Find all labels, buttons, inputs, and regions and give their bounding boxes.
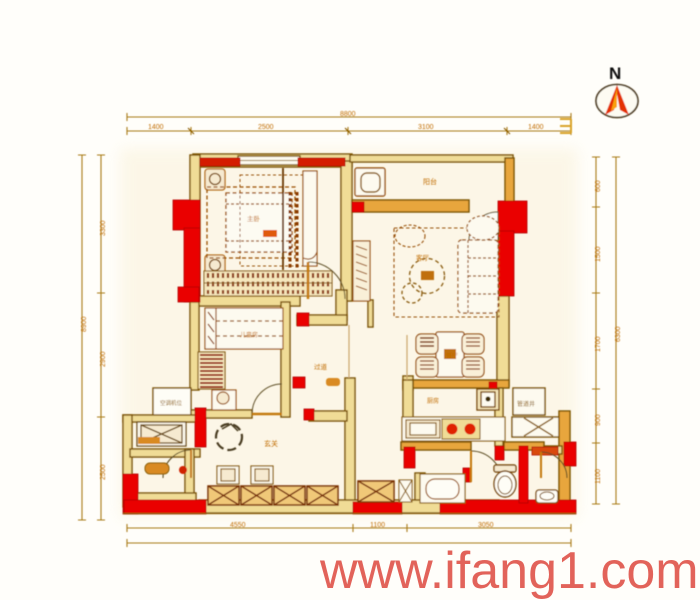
svg-text:2500: 2500 <box>100 464 107 480</box>
svg-text:1400: 1400 <box>148 124 164 131</box>
svg-text:3300: 3300 <box>100 220 107 236</box>
svg-text:8900: 8900 <box>81 316 88 332</box>
svg-text:1400: 1400 <box>528 124 544 131</box>
svg-text:8800: 8800 <box>340 111 356 118</box>
svg-text:www.ifang1.com: www.ifang1.com <box>319 542 699 600</box>
svg-text:厨房: 厨房 <box>427 397 439 405</box>
svg-text:2900: 2900 <box>100 351 107 367</box>
svg-text:4550: 4550 <box>230 522 246 529</box>
svg-text:N: N <box>609 64 621 83</box>
svg-text:1100: 1100 <box>370 522 385 529</box>
svg-text:阳台: 阳台 <box>423 177 437 186</box>
svg-text:主卧: 主卧 <box>247 214 261 223</box>
svg-text:过道: 过道 <box>314 362 328 371</box>
svg-text:1100: 1100 <box>595 469 602 484</box>
svg-text:3100: 3100 <box>418 124 434 131</box>
svg-text:1700: 1700 <box>595 336 602 352</box>
svg-text:管道井: 管道井 <box>517 400 535 408</box>
svg-text:1500: 1500 <box>595 246 602 262</box>
svg-text:3050: 3050 <box>478 522 494 529</box>
svg-text:6300: 6300 <box>615 326 622 342</box>
svg-text:空调机位: 空调机位 <box>160 399 183 407</box>
svg-text:餐厅: 餐厅 <box>446 352 458 360</box>
svg-text:客厅: 客厅 <box>416 253 430 262</box>
svg-text:600: 600 <box>595 180 602 192</box>
svg-text:玄关: 玄关 <box>264 439 278 448</box>
svg-text:2500: 2500 <box>258 124 274 131</box>
svg-text:900: 900 <box>595 414 602 426</box>
svg-text:儿童房: 儿童房 <box>240 331 258 339</box>
